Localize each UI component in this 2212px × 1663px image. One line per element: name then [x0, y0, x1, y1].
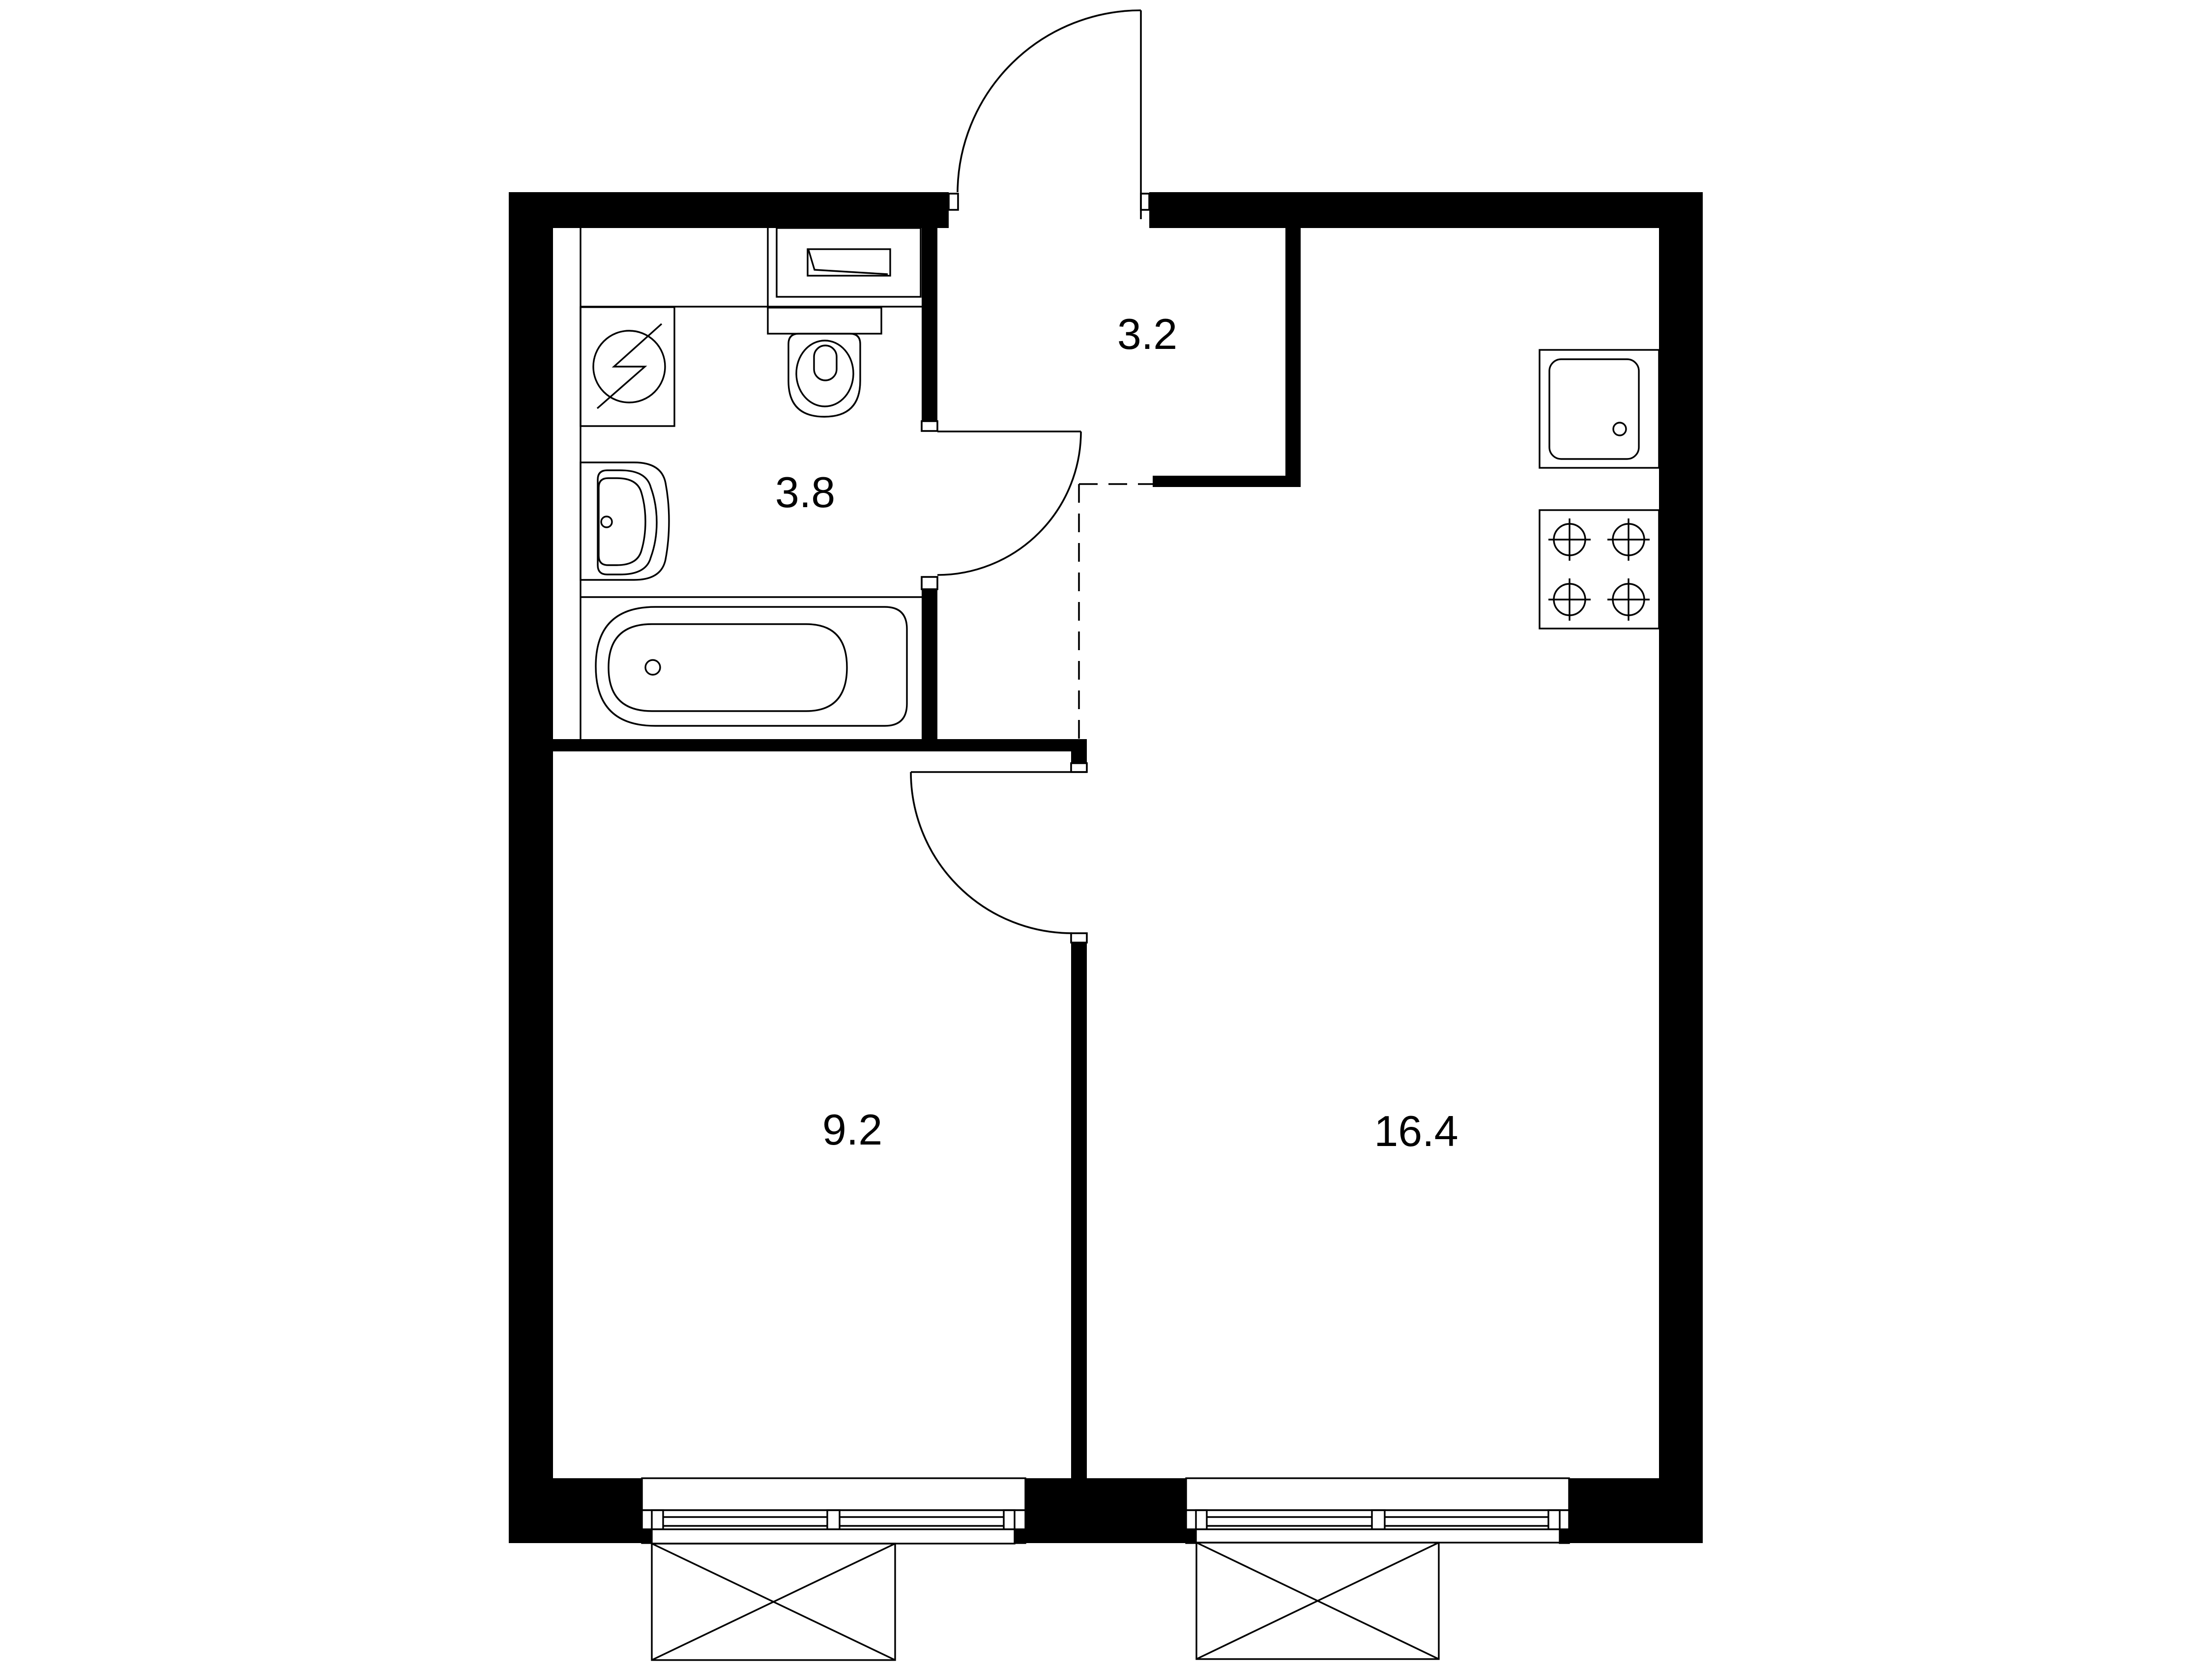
svg-text:3.2: 3.2	[1117, 310, 1177, 358]
svg-text:16.4: 16.4	[1374, 1107, 1458, 1155]
svg-text:3.8: 3.8	[775, 468, 835, 516]
svg-text:9.2: 9.2	[822, 1105, 882, 1154]
